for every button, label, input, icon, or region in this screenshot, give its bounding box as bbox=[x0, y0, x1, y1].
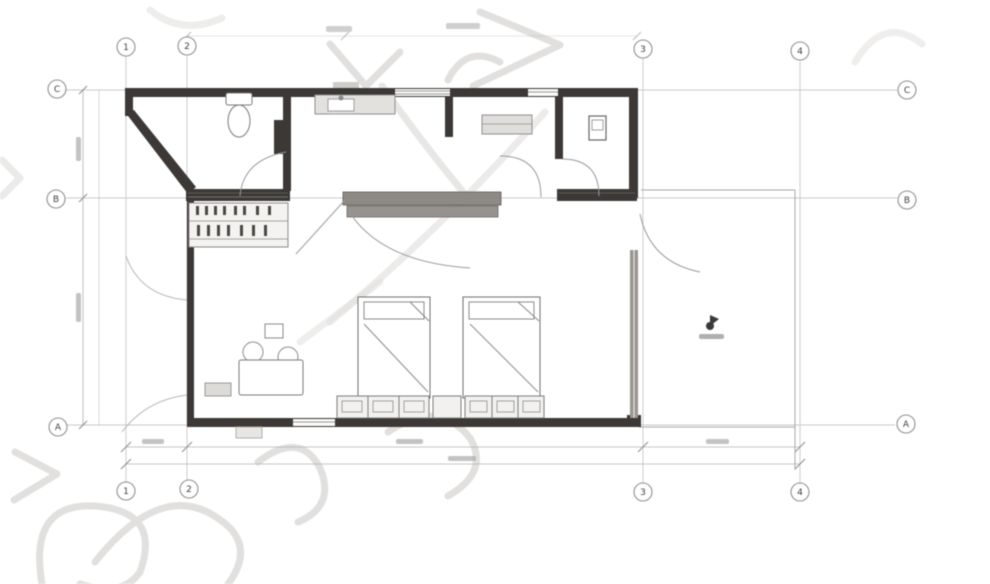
grid-label-4-bottom: 4 bbox=[797, 488, 803, 498]
grid-label-2-bottom: 2 bbox=[186, 485, 192, 495]
vent-top bbox=[333, 82, 359, 88]
nightstand bbox=[433, 396, 461, 418]
grid-label-B-right: B bbox=[904, 196, 910, 206]
desk bbox=[482, 115, 532, 134]
chair-1 bbox=[243, 342, 263, 362]
floorplan-drawing: 1 2 3 4 1 2 3 4 C B A C B A bbox=[0, 0, 990, 584]
grid-label-C-left: C bbox=[54, 85, 60, 95]
table bbox=[239, 360, 303, 395]
window-top-2 bbox=[528, 89, 558, 96]
grid-bubbles bbox=[47, 37, 916, 501]
electrical-panel bbox=[589, 116, 606, 140]
faucet-icon bbox=[339, 96, 344, 101]
grid-label-1-bottom: 1 bbox=[123, 487, 129, 497]
wall-middle-left bbox=[186, 189, 290, 201]
wall-bottom bbox=[190, 418, 637, 427]
grid-label-3-top: 3 bbox=[640, 45, 646, 55]
terrace-door-swing bbox=[640, 214, 700, 272]
grid-label-2-top: 2 bbox=[184, 42, 190, 52]
entrance-door-leaf bbox=[296, 200, 345, 254]
level-marker-caption-smudge bbox=[699, 334, 724, 339]
kitchen-cabinet bbox=[189, 203, 288, 247]
drawer-bench-2 bbox=[465, 396, 544, 418]
grid-label-A-right: A bbox=[903, 420, 910, 430]
exterior-step bbox=[236, 427, 262, 438]
room3-door-swing bbox=[500, 156, 541, 197]
wall-partition-3 bbox=[555, 95, 563, 159]
wall-bathroom-partition bbox=[283, 97, 291, 191]
terrace bbox=[639, 190, 795, 470]
drawer-bench-1 bbox=[337, 396, 429, 418]
floorplan-canvas: 1 2 3 4 1 2 3 4 C B A C B A bbox=[0, 0, 990, 584]
grid-label-A-left: A bbox=[55, 423, 62, 433]
sink-counter bbox=[315, 95, 395, 114]
level-marker-icon bbox=[699, 315, 724, 339]
wall-partition-2 bbox=[445, 95, 453, 137]
grid-label-3-bottom: 3 bbox=[640, 488, 646, 498]
grid-bubble-labels: 1 2 3 4 1 2 3 4 C B A C B A bbox=[53, 42, 910, 498]
long-counter-lower bbox=[347, 206, 498, 217]
wall-diagonal bbox=[125, 110, 196, 194]
toilet-tank bbox=[226, 93, 252, 105]
table-accessory bbox=[265, 324, 283, 338]
bed-2 bbox=[463, 297, 540, 398]
toilet-bowl bbox=[228, 105, 250, 137]
sink-basin bbox=[328, 99, 354, 111]
window-bottom bbox=[293, 419, 335, 426]
grid-label-4-top: 4 bbox=[797, 47, 803, 57]
bed-1 bbox=[358, 297, 430, 398]
grid-label-C-right: C bbox=[904, 86, 910, 96]
grid-label-1-top: 1 bbox=[123, 43, 129, 53]
entrance-door-swing bbox=[348, 210, 470, 268]
window-top-1 bbox=[395, 89, 450, 96]
grid-label-B-left: B bbox=[53, 195, 59, 205]
window-wall-right bbox=[630, 250, 638, 418]
left-wall-door-swings bbox=[122, 256, 187, 432]
wall-pier bbox=[274, 120, 283, 154]
wall-middle-right bbox=[557, 189, 637, 201]
cabinet-low bbox=[205, 383, 231, 396]
wall-right-upper bbox=[629, 88, 638, 198]
long-counter-upper bbox=[343, 192, 501, 205]
